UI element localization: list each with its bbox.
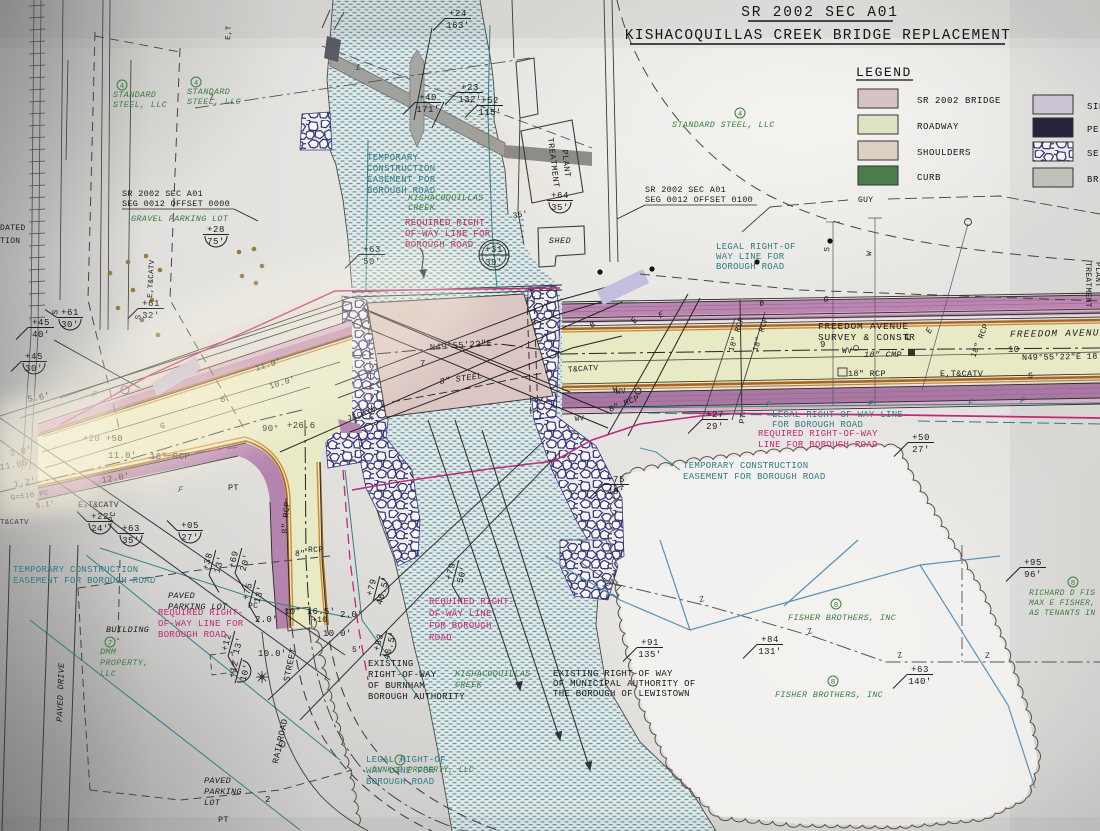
svg-text:FISHER BROTHERS, INC: FISHER BROTHERS, INC <box>775 690 884 700</box>
svg-text:+95: +95 <box>1024 558 1042 568</box>
svg-text:OF BURNHAM: OF BURNHAM <box>368 681 425 691</box>
svg-text:LEGAL RIGHT-OF: LEGAL RIGHT-OF <box>366 755 446 765</box>
svg-text:27': 27' <box>912 445 930 455</box>
svg-text:96': 96' <box>1024 570 1042 580</box>
svg-text:F: F <box>1020 396 1026 406</box>
svg-text:BOROUGH ROAD: BOROUGH ROAD <box>158 630 226 640</box>
svg-text:5': 5' <box>352 646 362 655</box>
svg-text:Z: Z <box>985 652 990 661</box>
svg-text:SR 2002 SEC A01: SR 2002 SEC A01 <box>122 189 203 199</box>
svg-text:131': 131' <box>758 647 782 657</box>
svg-text:STANDARD: STANDARD <box>113 90 156 100</box>
svg-text:PT: PT <box>738 413 749 425</box>
svg-text:BOROUGH ROAD: BOROUGH ROAD <box>367 186 435 196</box>
svg-text:PARKING: PARKING <box>204 787 242 797</box>
svg-text:+61: +61 <box>61 308 79 318</box>
svg-text:29': 29' <box>706 422 724 432</box>
svg-text:EASEMENT FOR BOROUGH ROAD: EASEMENT FOR BOROUGH ROAD <box>13 576 156 586</box>
svg-text:BOROUGH ROAD: BOROUGH ROAD <box>716 262 784 272</box>
svg-text:+61: +61 <box>142 299 160 309</box>
svg-text:BOROUGH AUTHORITY: BOROUGH AUTHORITY <box>368 692 465 702</box>
svg-text:4: 4 <box>738 111 743 119</box>
svg-text:2.0': 2.0' <box>255 615 278 625</box>
svg-text:W: W <box>866 251 874 257</box>
svg-text:115': 115' <box>478 108 502 118</box>
svg-text:GUY: GUY <box>858 196 873 205</box>
svg-text:TEMPORARY CONSTRUCTION: TEMPORARY CONSTRUCTION <box>683 461 808 471</box>
svg-text:CREEK: CREEK <box>408 203 436 213</box>
svg-text:+05: +05 <box>181 521 199 531</box>
svg-text:FREEDOM AVENUE: FREEDOM AVENUE <box>1010 327 1100 340</box>
svg-text:F: F <box>868 399 874 409</box>
svg-text:EXISTING RIGHT-OF WAY: EXISTING RIGHT-OF WAY <box>553 669 673 679</box>
svg-text:STANDARD STEEL, LLC: STANDARD STEEL, LLC <box>672 120 775 130</box>
svg-text:GRAVEL PARKING LOT: GRAVEL PARKING LOT <box>131 214 229 224</box>
svg-text:8: 8 <box>1071 580 1076 588</box>
svg-text:RIGHT-OF-WAY: RIGHT-OF-WAY <box>368 670 437 680</box>
svg-text:SR 2002 SEC A01: SR 2002 SEC A01 <box>645 185 726 195</box>
svg-text:SEG 0012 OFFSET 0000: SEG 0012 OFFSET 0000 <box>122 199 230 209</box>
svg-text:10: 10 <box>1008 345 1019 355</box>
svg-text:TREATMENT: TREATMENT <box>1083 262 1092 308</box>
svg-text:F: F <box>350 455 356 465</box>
svg-text:18" RCP: 18" RCP <box>848 369 886 379</box>
svg-text:WAY LINE FOR: WAY LINE FOR <box>716 252 785 262</box>
svg-text:FISHER BROTHERS, INC: FISHER BROTHERS, INC <box>788 613 897 623</box>
svg-text:WV: WV <box>574 415 585 424</box>
svg-text:135': 135' <box>638 650 662 660</box>
svg-text:PAVED DRIVE: PAVED DRIVE <box>55 662 67 722</box>
svg-text:140': 140' <box>908 677 932 687</box>
svg-text:2: 2 <box>265 795 271 805</box>
svg-text:TEMPORARY CONSTRUCTION: TEMPORARY CONSTRUCTION <box>13 565 138 575</box>
svg-text:OF-WAY LINE FOR: OF-WAY LINE FOR <box>405 229 491 239</box>
svg-text:SHOULDERS: SHOULDERS <box>917 148 971 158</box>
svg-text:ROAD: ROAD <box>429 633 452 643</box>
svg-text:LEGAL RIGHT-OF: LEGAL RIGHT-OF <box>716 242 796 252</box>
svg-text:48': 48' <box>607 487 625 497</box>
svg-text:LINE FOR BOROUGH ROAD: LINE FOR BOROUGH ROAD <box>758 440 878 450</box>
svg-text:SHED: SHED <box>549 236 571 246</box>
svg-text:2.0': 2.0' <box>340 610 363 620</box>
svg-text:BR: BR <box>1087 175 1099 185</box>
svg-text:+75: +75 <box>607 475 625 485</box>
svg-text:BOROUGH ROAD: BOROUGH ROAD <box>366 777 434 787</box>
svg-text:PC: PC <box>248 602 258 611</box>
svg-text:10' 16.5': 10' 16.5' <box>284 607 335 617</box>
svg-text:EASEMENT FOR: EASEMENT FOR <box>367 175 436 185</box>
svg-text:+84: +84 <box>761 635 779 645</box>
svg-text:+50: +50 <box>912 433 930 443</box>
svg-text:+28: +28 <box>207 225 225 235</box>
svg-text:9: 9 <box>820 340 826 350</box>
svg-text:DATED: DATED <box>0 224 26 233</box>
svg-text:PROPERTY,: PROPERTY, <box>100 658 149 668</box>
svg-text:18" CMP: 18" CMP <box>864 350 902 360</box>
svg-text:+31: +31 <box>485 245 503 255</box>
svg-text:8: 8 <box>834 602 839 610</box>
svg-text:+27: +27 <box>706 410 724 420</box>
svg-text:8: 8 <box>831 679 836 687</box>
svg-text:F: F <box>766 400 772 410</box>
svg-text:PAVED: PAVED <box>204 776 231 786</box>
svg-text:THE BOROUGH OF LEWISTOWN: THE BOROUGH OF LEWISTOWN <box>553 689 690 699</box>
svg-text:+10: +10 <box>312 616 327 625</box>
svg-text:AS TENANTS IN: AS TENANTS IN <box>1028 609 1095 618</box>
svg-text:STEEL, LLC: STEEL, LLC <box>187 97 242 107</box>
svg-text:PAVED: PAVED <box>168 591 195 601</box>
svg-text:TION: TION <box>0 237 20 246</box>
svg-text:FOR BOROUGH: FOR BOROUGH <box>429 621 492 631</box>
svg-text:10.0': 10.0' <box>323 629 352 639</box>
svg-text:E,T&CATV: E,T&CATV <box>940 369 984 379</box>
svg-text:RCP: RCP <box>308 546 323 555</box>
svg-text:+40: +40 <box>419 93 437 103</box>
svg-text:REQUIRED RIGHT-OF-WAY: REQUIRED RIGHT-OF-WAY <box>758 429 878 439</box>
svg-text:DMM: DMM <box>100 647 117 657</box>
svg-text:+52: +52 <box>481 96 499 106</box>
svg-text:39': 39' <box>485 258 503 268</box>
svg-text:SURVEY & CONSTR: SURVEY & CONSTR <box>818 332 916 343</box>
svg-text:N49°55'22"E 18: N49°55'22"E 18 <box>1022 352 1098 363</box>
svg-text:TEMPORARY: TEMPORARY <box>367 153 419 163</box>
svg-text:S: S <box>1028 372 1033 381</box>
svg-text:WV: WV <box>842 347 852 356</box>
svg-text:BUILDING: BUILDING <box>106 625 149 635</box>
svg-text:OF-WAY LINE FOR: OF-WAY LINE FOR <box>158 619 244 629</box>
svg-text:MAX E FISHER,: MAX E FISHER, <box>1029 599 1095 608</box>
svg-text:171': 171' <box>416 105 440 115</box>
svg-text:LEGAL RIGHT-OF WAY LINE: LEGAL RIGHT-OF WAY LINE <box>772 410 903 420</box>
svg-text:W: W <box>612 385 618 394</box>
svg-text:STANDARD: STANDARD <box>187 87 230 97</box>
svg-text:REQUIRED RIGHT-: REQUIRED RIGHT- <box>429 597 515 607</box>
svg-text:F: F <box>968 398 974 408</box>
svg-text:PLANT: PLANT <box>1093 262 1100 288</box>
svg-text:KISHACOQUILLAS: KISHACOQUILLAS <box>455 669 531 679</box>
svg-text:+23: +23 <box>461 83 479 93</box>
svg-text:SEG 0012 OFFSET 0100: SEG 0012 OFFSET 0100 <box>645 195 753 205</box>
svg-text:OF MUNICIPAL AUTHORITY OF: OF MUNICIPAL AUTHORITY OF <box>553 679 696 689</box>
svg-text:CREEK: CREEK <box>455 680 483 690</box>
svg-text:LOT: LOT <box>204 798 221 808</box>
svg-text:LLC: LLC <box>100 669 117 679</box>
svg-text:CONSTRUCTION: CONSTRUCTION <box>367 164 435 174</box>
svg-text:S: S <box>823 246 832 252</box>
svg-text:REQUIRED RIGHT-: REQUIRED RIGHT- <box>405 218 491 228</box>
svg-text:+45: +45 <box>32 318 50 328</box>
svg-text:℄: ℄ <box>904 333 911 343</box>
svg-text:CURB: CURB <box>917 173 941 183</box>
svg-text:+91: +91 <box>641 638 659 648</box>
svg-text:EASEMENT FOR BOROUGH ROAD: EASEMENT FOR BOROUGH ROAD <box>683 472 826 482</box>
svg-text:40': 40' <box>32 330 50 340</box>
svg-text:RICHARD D FIS: RICHARD D FIS <box>1029 589 1095 598</box>
svg-text:WAY LINE FOR: WAY LINE FOR <box>366 766 435 776</box>
svg-text:PARKING LOT: PARKING LOT <box>168 602 228 612</box>
svg-text:F: F <box>178 485 184 495</box>
svg-text:T&CATV: T&CATV <box>0 519 29 527</box>
svg-text:+45: +45 <box>25 352 43 362</box>
svg-text:+63: +63 <box>122 524 140 534</box>
svg-text:OF-WAY LINE: OF-WAY LINE <box>429 609 492 619</box>
svg-text:PT: PT <box>228 483 239 493</box>
svg-text:8": 8" <box>295 550 305 559</box>
svg-text:10.0': 10.0' <box>258 649 287 659</box>
svg-text:EXISTING: EXISTING <box>368 659 414 669</box>
svg-text:7: 7 <box>420 359 426 369</box>
svg-text:+63: +63 <box>911 665 929 675</box>
svg-text:STEEL, LLC: STEEL, LLC <box>113 100 168 110</box>
svg-text:FREEDOM AVENUE: FREEDOM AVENUE <box>818 321 909 332</box>
